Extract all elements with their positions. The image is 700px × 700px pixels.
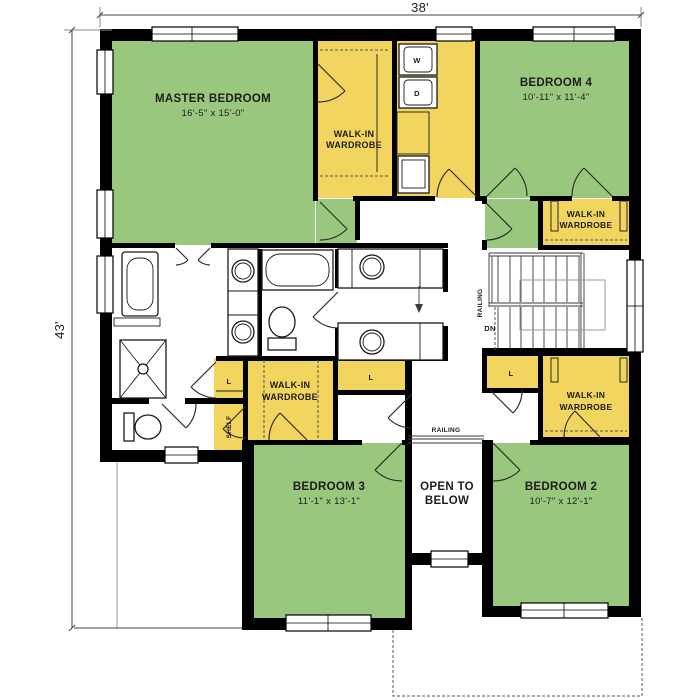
wall-bedroom3-top-1 [242, 440, 362, 445]
master-vestibule-area [316, 199, 357, 245]
wall-b3wardrobe-right [333, 356, 338, 445]
stairs-down-label: DN [484, 324, 495, 333]
wall-hall-top-1 [353, 196, 435, 201]
wall-bedroom2-left [482, 440, 493, 617]
toilet-icon [124, 413, 161, 441]
railing-open-below [408, 436, 484, 443]
shower-icon [120, 340, 166, 398]
bedroom2-label: BEDROOM 2 [525, 481, 597, 493]
bedroom3-dims: 11'-1" x 13'-1" [298, 496, 360, 507]
open-below-label-2: BELOW [425, 495, 469, 507]
bathtub-icon [262, 250, 333, 290]
window-icon [521, 603, 608, 618]
wall-corridor-b [443, 326, 448, 361]
vanity-sink-icon [228, 249, 258, 356]
door-arc-icon [313, 292, 338, 328]
window-icon [152, 27, 238, 41]
wall-b2wardrobe-bottom [538, 437, 641, 445]
stairs-icon [489, 253, 605, 352]
wall-wardrobe-laundry [392, 40, 397, 201]
window-icon [533, 27, 615, 41]
window-icon [286, 615, 371, 631]
bedroom4-area [478, 38, 631, 198]
wall-laundry-bedroom4 [475, 40, 480, 201]
down-arrow-icon [415, 286, 423, 313]
window-icon [431, 551, 468, 567]
shelf-label: SHELF [226, 416, 233, 439]
linen-right-label: L [509, 369, 514, 378]
wall-vestibule-east [355, 201, 360, 240]
wall-master-wardrobe [313, 40, 318, 201]
wall-b4wardrobe-bottom [538, 245, 630, 250]
floor-plan-drawing: 38' 43' MASTER BEDROOM 16'-5" x 15'-0" B… [0, 0, 700, 700]
master-wardrobe-area [316, 40, 394, 198]
roof-dashed-outline [393, 618, 642, 696]
floor-plan-page: 38' 43' MASTER BEDROOM 16'-5" x 15'-0" B… [0, 0, 700, 700]
wall-b2wardrobe-left [538, 356, 543, 445]
toilet-icon [268, 307, 296, 350]
master-bedroom-dims: 16'-5" x 15'-0" [182, 108, 245, 119]
bedroom2-wardrobe-label-1: WALK-IN [567, 390, 605, 400]
bathtub-icon [114, 252, 160, 326]
wall-alcove-right [538, 196, 543, 250]
window-icon [97, 50, 113, 94]
vanity-sink-icon [338, 323, 443, 360]
bedroom4-dims: 10'-11" x 11'-4" [522, 92, 589, 103]
wall-stairs-bottom [482, 348, 641, 356]
linen-center-label: L [369, 373, 374, 382]
wall-bedroom2-top [530, 440, 540, 445]
master-bedroom-area [110, 38, 315, 245]
wall-hall-top-3 [530, 196, 572, 201]
window-icon [436, 27, 472, 41]
wall-hall-top-4 [612, 196, 641, 201]
dryer-label: D [414, 89, 420, 98]
window-icon [97, 256, 113, 313]
bedroom2-dims: 10'-7" x 12'-1" [530, 496, 593, 507]
bedroom2-wardrobe-label-2: WARDROBE [560, 402, 613, 412]
door-arc-icon [490, 390, 522, 413]
door-arc-icon [191, 362, 216, 398]
open-below-label-1: OPEN TO [420, 481, 474, 493]
bedroom2-area [491, 443, 631, 608]
door-arc-icon [198, 248, 210, 265]
wall-wc-top-1 [112, 398, 149, 404]
wall-alcove-left-b [482, 240, 487, 250]
bedroom3-area [252, 443, 407, 620]
master-bedroom-label: MASTER BEDROOM [155, 93, 271, 105]
stairs-railing-label: RAILING [477, 289, 484, 318]
window-icon [627, 260, 643, 352]
wall-linen-center-bottom [335, 390, 410, 395]
window-icon [97, 190, 113, 238]
bedroom3-wardrobe-label-1: WALK-IN [270, 380, 311, 390]
bedroom3-label: BEDROOM 3 [293, 481, 365, 493]
door-arc-icon [162, 404, 196, 428]
wall-corridor-a [443, 249, 448, 292]
bedroom4-wardrobe-label-1: WALK-IN [567, 209, 605, 219]
wall-bath-top-1 [112, 243, 175, 248]
open-below-railing-label: RAILING [432, 427, 461, 434]
wall-bath-top-2 [211, 243, 448, 248]
bedroom4-wardrobe-label-2: WARDROBE [560, 220, 613, 230]
bedroom4-alcove-area [485, 199, 540, 248]
washer-label: W [413, 56, 421, 65]
bedroom4-label: BEDROOM 4 [520, 77, 593, 89]
wall-bedroom3-left [242, 440, 254, 630]
bedroom3-wardrobe-label-2: WARDROBE [262, 392, 318, 402]
overall-depth-label: 43' [52, 321, 67, 339]
master-wardrobe-label-2: WARDROBE [326, 140, 382, 150]
vanity-sink-icon [338, 249, 443, 288]
master-wardrobe-label-1: WALK-IN [334, 129, 375, 139]
window-icon [165, 447, 198, 463]
overall-width-label: 38' [411, 0, 429, 15]
wall-alcove-left-a [482, 196, 487, 204]
door-arc-icon [176, 248, 188, 265]
wall-wc-top-2 [185, 398, 216, 404]
linen-left-label: L [227, 377, 232, 386]
wall-linen-right-left [482, 356, 487, 393]
wall-bedroom3-top-2 [402, 440, 412, 445]
